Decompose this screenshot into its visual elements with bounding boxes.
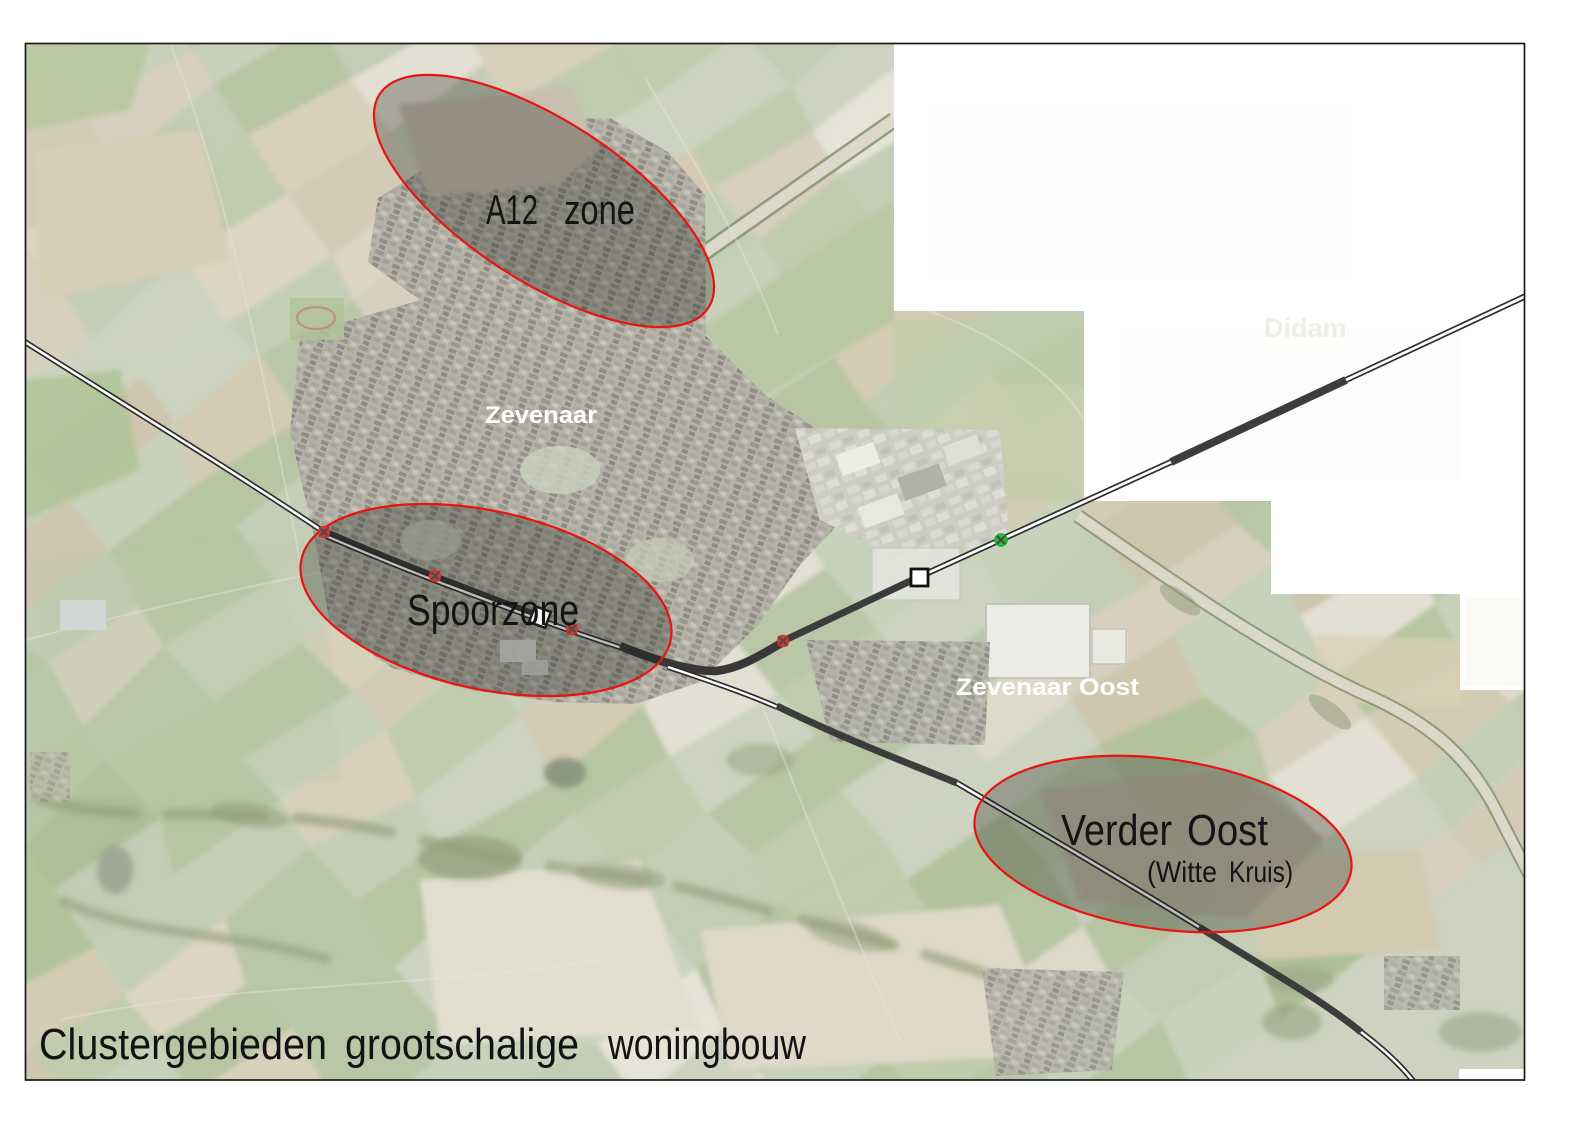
- svg-text:Zevenaar: Zevenaar: [485, 402, 597, 429]
- svg-text:Spoorzone: Spoorzone: [407, 586, 579, 635]
- svg-text:Didam: Didam: [1264, 313, 1347, 343]
- svg-text:VerderOost: VerderOost: [1061, 806, 1268, 855]
- svg-text:Zevenaar Oost: Zevenaar Oost: [956, 674, 1139, 701]
- svg-text:Clustergebiedengrootschaligewo: Clustergebiedengrootschaligewoningbouw: [39, 1020, 806, 1069]
